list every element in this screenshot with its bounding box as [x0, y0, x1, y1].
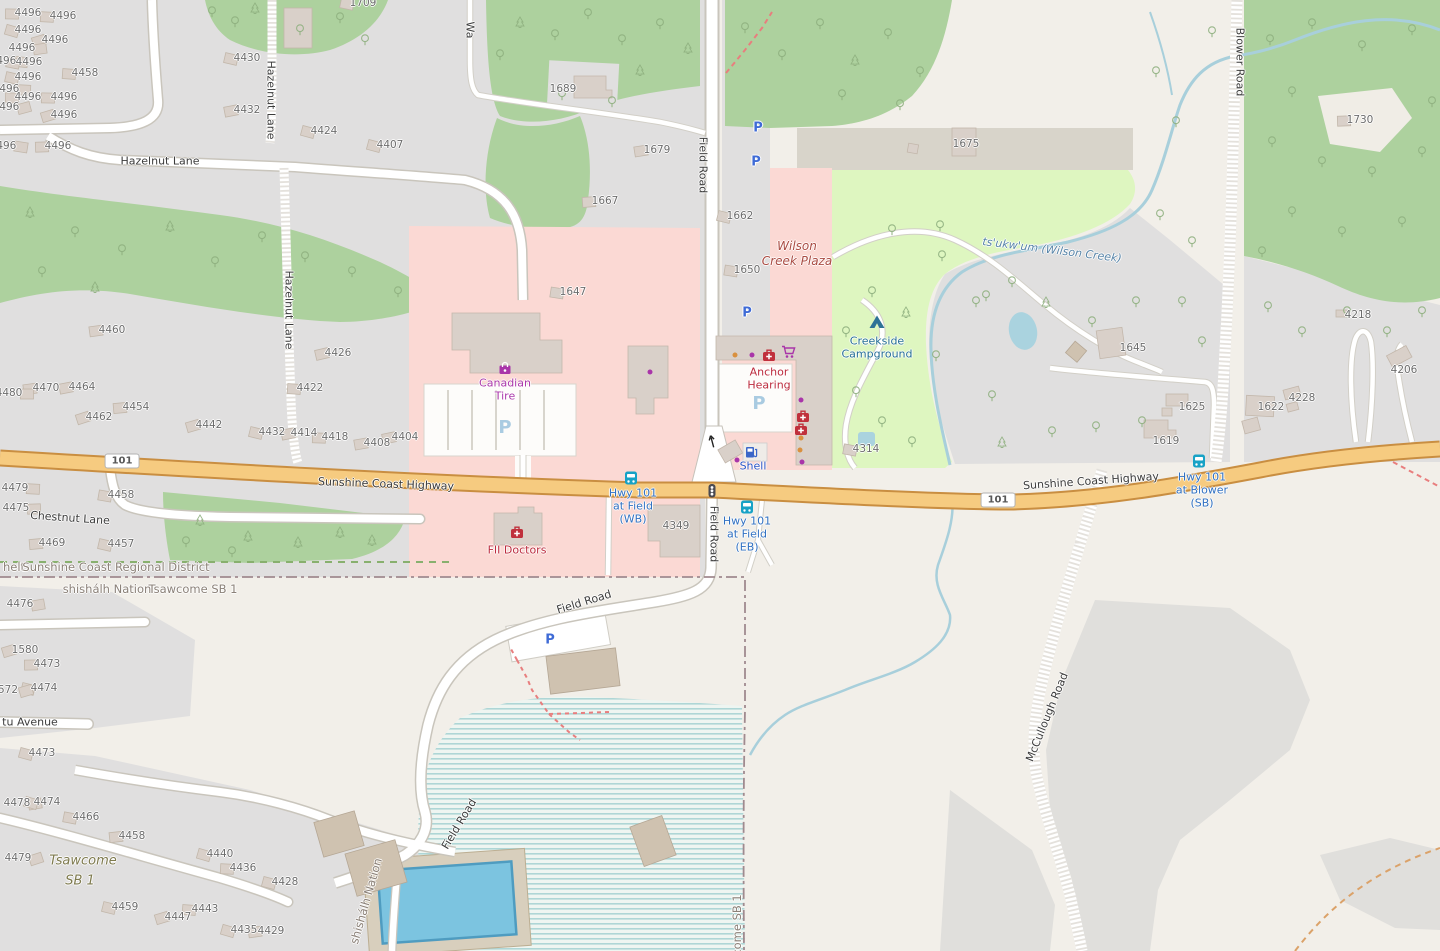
building-footprint: [14, 141, 28, 153]
building-footprint: [724, 265, 738, 277]
building-footprint: [312, 433, 325, 443]
building-footprint: [248, 926, 262, 938]
building-footprint: [21, 389, 34, 399]
building-footprint: [27, 504, 40, 514]
building-footprint: [843, 444, 858, 456]
building-footprint: [33, 43, 47, 55]
building-footprint: [24, 660, 37, 670]
building-footprint: [281, 428, 296, 440]
building-footprint: [5, 93, 18, 103]
building-footprint: [89, 325, 103, 337]
building-footprint: [354, 438, 369, 450]
building-footprint: [59, 382, 74, 394]
building-footprint: [113, 402, 127, 413]
building-footprint: [31, 599, 46, 611]
building-footprint: [29, 538, 43, 549]
building-footprint: [63, 812, 78, 824]
building-footprint: [62, 69, 76, 80]
building-footprint: [1337, 116, 1350, 126]
building-footprint: [550, 287, 564, 299]
building-footprint: [35, 142, 48, 152]
building-footprint: [382, 432, 397, 444]
building-footprint: [6, 57, 21, 69]
building-footprint: [5, 9, 18, 19]
building-footprint: [182, 905, 196, 916]
map-canvas[interactable]: Hazelnut LaneHazelnut LaneHazelnut LaneF…: [0, 0, 1440, 951]
building-footprint: [224, 105, 239, 117]
building-footprint: [220, 864, 234, 875]
building-footprint: [26, 484, 40, 495]
map-base: [0, 0, 1440, 951]
building-footprint: [41, 93, 54, 103]
building-footprint: [109, 831, 123, 842]
building-footprint: [582, 197, 596, 208]
building-footprint: [40, 12, 54, 23]
building-footprint: [17, 85, 31, 96]
building-footprint: [287, 384, 301, 395]
building-footprint: [98, 490, 113, 502]
building-footprint: [634, 145, 648, 157]
